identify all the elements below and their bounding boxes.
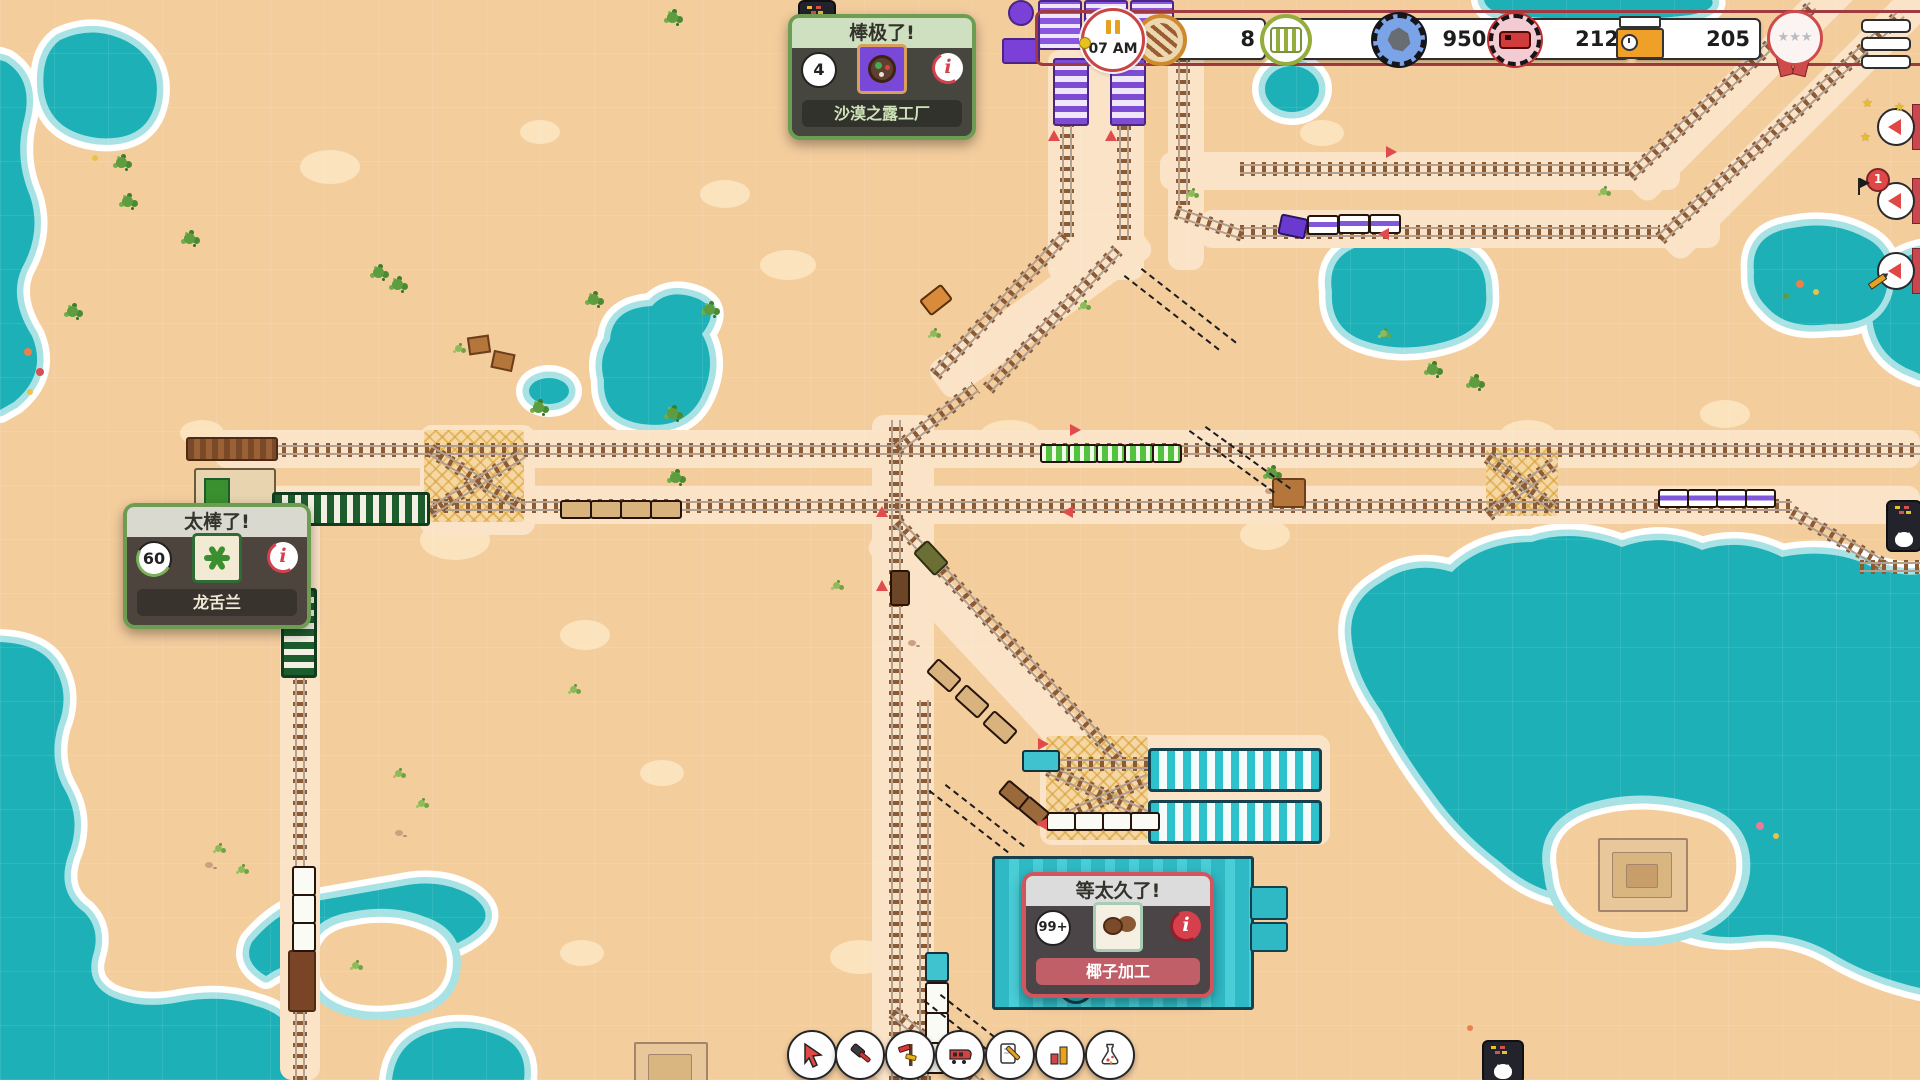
train-car[interactable] [1338,214,1370,234]
coconut-factory-annex[interactable] [1250,886,1288,920]
red-train-coin-icon [1489,14,1541,66]
rail-signal-icon [896,1041,924,1069]
orders-tool-button[interactable] [985,1030,1035,1080]
station-notification-popup[interactable]: 太棒了! 60 i 龙舌兰 [123,503,311,629]
resource-track-parts[interactable]: 8 [1153,18,1266,60]
signal-tool-button[interactable] [885,1030,935,1080]
blue-rock-coin-icon [1373,14,1425,66]
edge-alert-pencil[interactable] [1860,248,1920,292]
alert-jump-button[interactable] [1877,252,1915,290]
desert-dew-item-icon [857,44,907,94]
train-car[interactable] [1745,489,1776,508]
locomotive[interactable] [890,570,910,606]
hamburger-menu-button[interactable] [1861,15,1913,73]
track-segment[interactable] [1240,162,1630,176]
resource-value: 8 [1240,27,1255,51]
train-car[interactable] [1068,444,1098,463]
info-icon[interactable]: i [1171,911,1201,941]
train-car[interactable] [1716,489,1747,508]
train-car[interactable] [1152,444,1182,463]
star-icon: ★ [1862,96,1873,110]
train-car[interactable] [1046,812,1076,831]
train-car[interactable] [1074,812,1104,831]
track-segment[interactable] [1860,560,1920,574]
cat-station-marker[interactable] [1886,500,1920,552]
coconut-factory-annex[interactable] [1250,922,1288,952]
popup-count-badge: 99+ [1035,910,1071,946]
train-car[interactable] [1124,444,1154,463]
track-segment[interactable] [1176,55,1190,205]
factory-loading-platform[interactable] [1053,58,1089,126]
game-viewport: 07 AM 8 1 9505 212 205 ★★★ [0,0,1920,1080]
star-icon: ★ [1894,100,1905,114]
train-car[interactable] [292,894,316,924]
train-car[interactable] [650,500,682,519]
train-car[interactable] [292,922,316,952]
train-car[interactable] [620,500,652,519]
stats-tool-button[interactable] [1035,1030,1085,1080]
achievement-medal[interactable]: ★★★ [1765,10,1825,74]
train-tool-button[interactable] [935,1030,985,1080]
wooden-platform[interactable] [186,437,278,461]
locomotive[interactable] [925,952,949,982]
flask-icon [1096,1041,1124,1069]
clock-widget[interactable]: 07 AM [1081,8,1145,72]
train-car[interactable] [1040,444,1070,463]
green-wagon-coin-icon [1260,14,1312,66]
edge-alert-flag[interactable]: 1 [1860,178,1920,222]
info-icon[interactable]: i [268,542,298,572]
rail-bridge [288,950,316,1012]
train-car[interactable] [1102,812,1132,831]
cursor-icon [798,1041,826,1069]
train-car[interactable] [1687,489,1718,508]
farm-roof-detail [204,478,230,506]
bar-chart-icon [1046,1041,1074,1069]
coconut-station-platform[interactable] [1148,800,1322,844]
train-car[interactable] [1096,444,1126,463]
orange-sign-clock-icon [1615,14,1663,60]
train-car[interactable] [560,500,592,519]
info-icon[interactable]: i [933,53,963,83]
water-tower-tank [1008,0,1034,26]
resource-top-bar: 07 AM 8 1 9505 212 205 ★★★ [1035,10,1920,66]
popup-source-label[interactable]: 沙漠之露工厂 [802,100,962,127]
station-notification-popup[interactable]: 棒极了! 4 i 沙漠之露工厂 [788,14,976,140]
triangle-icon [1888,119,1901,135]
train-icon [946,1041,974,1069]
train-car[interactable] [590,500,622,519]
clock-marker-dot [1079,37,1091,49]
train-car[interactable] [1658,489,1689,508]
cat-station-marker[interactable] [1482,1040,1524,1080]
hammer-icon [846,1041,874,1069]
pause-icon [1106,20,1120,34]
resource-value: 205 [1706,27,1750,51]
edge-alert-stars[interactable]: ★ ★ ★ [1860,104,1920,148]
trackside-hut[interactable] [1272,478,1306,508]
star-icon: ★ [1860,130,1871,144]
flag-icon [1858,178,1860,195]
build-tool-button[interactable] [835,1030,885,1080]
clipboard-pencil-icon [996,1041,1024,1069]
resource-schedule[interactable]: 205 [1633,18,1761,60]
train-car[interactable] [292,866,316,896]
resource-locomotives[interactable]: 212 [1507,18,1630,60]
track-segment[interactable] [1117,122,1131,240]
triangle-icon [1888,193,1901,209]
agave-item-icon [192,533,242,583]
locomotive[interactable] [1022,750,1060,772]
track-segment[interactable] [1060,122,1074,237]
popup-count-badge: 4 [801,52,837,88]
select-tool-button[interactable] [787,1030,837,1080]
popup-source-label[interactable]: 龙舌兰 [137,589,297,616]
popup-count-badge: 60 [136,541,172,577]
coconut-item-icon [1093,902,1143,952]
resource-value: 212 [1575,27,1619,51]
clock-time: 07 AM [1084,41,1142,57]
medal-stars: ★★★ [1767,10,1823,66]
train-car[interactable] [1307,215,1339,235]
popup-source-label[interactable]: 椰子加工 [1036,958,1200,985]
research-tool-button[interactable] [1085,1030,1135,1080]
station-warning-popup[interactable]: 等太久了! 99+ i 椰子加工 [1022,872,1214,998]
coconut-station-platform[interactable] [1148,748,1322,792]
train-car[interactable] [1130,812,1160,831]
triangle-icon [1888,263,1901,279]
